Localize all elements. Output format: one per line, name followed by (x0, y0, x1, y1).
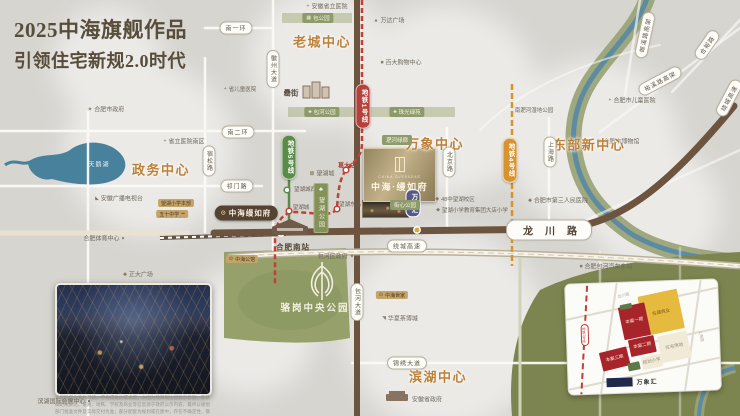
label-text: 中海公馆 (235, 256, 255, 263)
map-label: +省儿童医院 (224, 85, 256, 93)
map-label: 罍街 (284, 88, 299, 99)
map-label: ◆正大广场 (123, 270, 153, 279)
label-text: 地铁4号线 (505, 143, 515, 178)
project-logo-card: CHINA OVERSEAS 中海·缦如府 (363, 148, 436, 202)
inset-metro-label: 地铁1号线 (581, 324, 590, 346)
label-icon: + (609, 97, 612, 103)
map-label: 葛大店 (338, 161, 356, 170)
disclaimer-text: 本资料仅为要约邀请，不构成要约或承诺；本图为项目周边配套示意图，非精确距离表达，… (55, 395, 210, 416)
map-label: 地铁5号线 (282, 135, 297, 180)
map-label: 地铁4号线 (503, 138, 518, 183)
inset-parcel: 住宅用地 (657, 331, 692, 364)
map-label: 淝河绿廊 (382, 135, 412, 145)
map-label: ⊙中海缦如府 (215, 206, 278, 221)
district-label: 东部新中心 (553, 135, 626, 154)
label-text: 东部新中心 (553, 135, 626, 154)
label-icon: ⊙ (379, 292, 383, 298)
inset-parcel: 本案三期 (599, 346, 631, 371)
map-label: ▲万达广场 (374, 16, 405, 25)
headline-line1: 2025中海旗舰作品 (14, 14, 187, 44)
map-label: ◆合肥市第三人民医院 (528, 196, 588, 205)
headline: 2025中海旗舰作品 引领住宅新规2.0时代 (14, 14, 187, 73)
map-label: ■百大购物中心 (380, 58, 421, 67)
map-label: 望湖东路 (339, 200, 361, 208)
map-label: 南淝河湿地公园 (515, 106, 554, 114)
label-text: 合肥市儿童医院 (613, 96, 655, 105)
label-text: 街心公园 (394, 201, 416, 209)
district-label: 万象中心 (406, 134, 464, 153)
mixc-logo-box (606, 377, 632, 387)
map-label: ■合肥包河汽车东站 (579, 262, 632, 271)
map-label: 宿松路 (203, 146, 216, 177)
map-label: 南一环 (219, 22, 252, 35)
map-label: 锦绣大道 (387, 357, 427, 370)
label-text: 骆岗中央公园 (280, 300, 349, 314)
label-text: 合肥体育中心 (83, 234, 119, 243)
map-label: +安徽省立医院 (307, 2, 348, 11)
label-text: 百大购物中心 (386, 58, 422, 67)
map-label: 龙川路 (506, 220, 592, 241)
map-label: 合肥体育中心● (83, 234, 124, 243)
headline-line2: 引领住宅新规2.0时代 (14, 47, 187, 73)
label-text: 包公园 (313, 14, 330, 22)
label-text: 望湖城 (316, 169, 334, 178)
district-label: 政务中心 (132, 160, 190, 179)
label-text: 安徽省立医院 (311, 2, 347, 11)
label-text: 龙川路 (523, 223, 589, 238)
map-label: ♣望湖公园 (314, 183, 329, 233)
label-icon: ● (121, 235, 124, 241)
label-text: 合肥市政府 (94, 105, 124, 114)
map-label: ▦包公园 (302, 13, 333, 23)
map-label: ◆48中望湖校区 (435, 195, 474, 203)
label-icon: ⊙ (221, 210, 227, 217)
label-text: 徽州大道 (269, 55, 278, 83)
label-text: 中海世家 (385, 292, 405, 299)
label-text: 锦绣大道 (393, 359, 421, 368)
label-text: 包河大道 (353, 288, 362, 316)
label-text: 中海缦如府 (229, 208, 272, 219)
map-label: 望湖小学本部 (158, 199, 194, 207)
label-icon: ◆ (123, 271, 127, 277)
label-text: 政务中心 (132, 160, 190, 179)
label-text: 望湖公园 (317, 197, 326, 229)
label-text: 望湖城 (293, 203, 310, 211)
label-text: 包河公园 (314, 108, 336, 116)
masterplan-inset-card: 地铁1号线 在建商业本案一期本案二期本案三期住宅用地规划小学龙川路上海路 万象汇 (564, 278, 722, 395)
label-text: 合肥南站 (276, 242, 310, 253)
map-label: 徽州大道 (267, 50, 280, 88)
label-icon: ◥ (382, 315, 386, 321)
label-text: 南淝河湿地公园 (515, 106, 554, 114)
mall-logo-row: 万象汇 (606, 377, 657, 388)
label-icon: ▦ (310, 170, 315, 176)
label-text: 望湖小学教育集团大店小学 (442, 206, 508, 214)
map-label: 五十中学▪▪ (156, 210, 188, 218)
city-night-photo (55, 283, 212, 396)
label-text: 地铁5号线 (284, 140, 294, 175)
map-label: +合肥市儿童医院 (609, 96, 656, 105)
label-icon: ◆ (436, 207, 440, 213)
label-text: 上海路 (546, 142, 555, 163)
label-text: 望湖东路 (339, 200, 361, 208)
district-label: 老城中心 (293, 32, 351, 51)
label-text: 祁门路 (226, 182, 247, 191)
map-label: ◥华夏茶博城 (382, 314, 418, 323)
label-text: 南一环 (225, 24, 246, 33)
label-text: 望湖小学本部 (161, 200, 191, 207)
label-text: 万象中心 (406, 134, 464, 153)
hefei-south-station-icon (272, 219, 308, 235)
map-label: 街心公园 (390, 200, 420, 210)
label-icon: ■ (380, 59, 383, 65)
label-text: 省儿童医院 (229, 85, 257, 93)
map-label: 祁门路 (220, 180, 253, 193)
label-text: 珠光绿苑 (399, 108, 421, 116)
label-icon: + (307, 3, 310, 9)
label-icon: ◆ (528, 197, 532, 203)
label-text: 万达广场 (380, 16, 404, 25)
map-label: ◆望湖小学教育集团大店小学 (436, 206, 508, 214)
map-label: 包河区政府★ (318, 252, 355, 261)
label-text: 华夏茶博城 (388, 314, 418, 323)
label-icon: ▲ (374, 17, 379, 23)
map-label: 上海路 (544, 137, 557, 168)
map-label: 骆岗中央公园 (280, 300, 349, 314)
map-label: ♣珠光绿苑 (389, 107, 424, 117)
label-icon: ♣ (318, 187, 324, 195)
province-gov-icon (386, 391, 408, 401)
label-text: 合肥包河汽车东站 (585, 262, 633, 271)
label-text: 合肥市第三人民医院 (534, 196, 588, 205)
inset-road-label: 龙川路 (617, 291, 630, 300)
inset-parcel: 规划小学 (641, 353, 663, 370)
map-label: ♣包河公园 (304, 107, 339, 117)
label-text: 48中望湖校区 (441, 195, 475, 203)
label-text: 绕城高速 (393, 242, 421, 251)
map-label: ▦望湖城 (310, 169, 335, 178)
label-icon: ⊙ (229, 256, 233, 262)
label-text: 五十中学 (159, 211, 179, 218)
label-icon: ♣ (393, 109, 396, 115)
label-icon: + (164, 138, 167, 144)
label-text: 省立医院南区 (168, 137, 204, 146)
map-label: 地铁1号线 (356, 84, 371, 129)
map-label: 合肥南站 (276, 242, 310, 253)
map-poster: 2025中海旗舰作品 引领住宅新规2.0时代 CHINA OVERSEAS 中海… (0, 0, 740, 416)
label-text: 葛大店 (338, 161, 356, 170)
label-text: 天鹅湖 (88, 160, 109, 169)
label-text: 宿松路 (205, 151, 214, 172)
map-label: 包河大道 (351, 283, 364, 321)
label-text: 地铁1号线 (358, 89, 368, 124)
label-text: 北京路 (445, 152, 454, 173)
label-icon: ★ (350, 253, 354, 259)
label-text: 南二环 (227, 128, 248, 137)
label-icon: ♣ (308, 109, 311, 115)
map-label: 安徽省政府 (412, 395, 442, 404)
map-label: 绕城高速 (387, 240, 427, 253)
label-text: 安徽广播电视台 (101, 194, 143, 203)
label-icon: ▪▪ (181, 211, 185, 217)
label-icon: ◆ (435, 196, 439, 202)
map-label: 南二环 (221, 126, 254, 139)
label-icon: ◣ (95, 195, 99, 201)
label-text: 包河区政府 (318, 252, 348, 261)
label-text: 淝河绿廊 (386, 136, 408, 144)
map-label: ⊙中海世家 (376, 291, 408, 299)
label-text: 正大广场 (129, 270, 153, 279)
label-icon: + (224, 86, 227, 92)
map-label: ◣安徽广播电视台 (95, 194, 143, 203)
map-label: ⊙中海公馆 (226, 255, 258, 263)
label-icon: ▦ (306, 15, 311, 21)
logo-en-text: CHINA OVERSEAS (378, 175, 420, 179)
map-label: ★合肥市政府 (88, 105, 125, 114)
label-icon: ■ (579, 263, 582, 269)
label-text: 罍街 (284, 88, 299, 99)
mall-name: 万象汇 (636, 377, 657, 387)
inset-parcel (627, 361, 640, 371)
map-label: 望湖城 (293, 203, 310, 211)
map-label: +省立医院南区 (164, 137, 205, 146)
map-label: 天鹅湖 (88, 160, 109, 169)
logo-emblem-icon (395, 157, 405, 172)
map-label: 北京路 (443, 147, 456, 178)
label-text: 老城中心 (293, 32, 351, 51)
label-icon: ★ (88, 106, 92, 112)
label-text: 安徽省政府 (412, 395, 442, 404)
